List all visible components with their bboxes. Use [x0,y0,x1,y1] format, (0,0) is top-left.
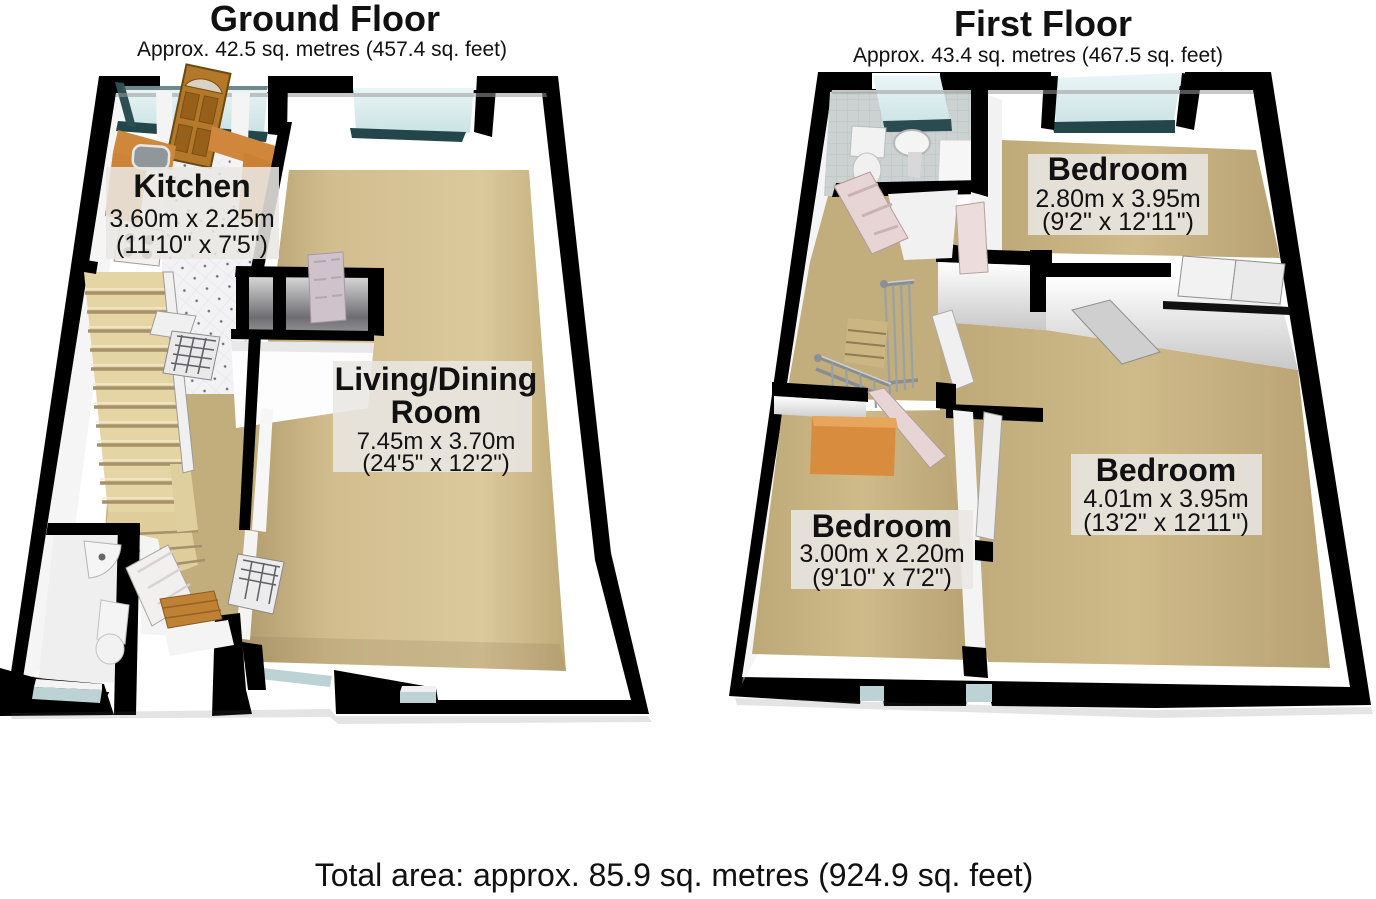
svg-text:Living/Dining: Living/Dining [335,361,538,397]
svg-text:(9'10" x 7'2"): (9'10" x 7'2") [812,564,952,592]
svg-text:3.60m x 2.25m: 3.60m x 2.25m [109,205,274,233]
svg-text:Total area: approx. 85.9 sq. m: Total area: approx. 85.9 sq. metres (924… [315,857,1034,893]
svg-text:Ground Floor: Ground Floor [210,0,440,39]
svg-text:Bedroom: Bedroom [1096,452,1236,488]
svg-text:(11'10" x 7'5"): (11'10" x 7'5") [116,231,268,259]
svg-text:Bedroom: Bedroom [812,508,952,544]
svg-text:Bedroom: Bedroom [1048,151,1188,187]
svg-text:Kitchen: Kitchen [133,168,250,204]
svg-text:Approx. 43.4 sq. metres (467.5: Approx. 43.4 sq. metres (467.5 sq. feet) [853,44,1223,67]
svg-text:Room: Room [391,394,482,430]
svg-text:(24'5" x 12'2"): (24'5" x 12'2") [362,450,510,477]
svg-text:(9'2" x 12'11"): (9'2" x 12'11") [1042,208,1194,236]
svg-text:(13'2" x 12'11"): (13'2" x 12'11") [1083,509,1249,537]
svg-text:Approx. 42.5 sq. metres (457.4: Approx. 42.5 sq. metres (457.4 sq. feet) [137,38,507,61]
svg-text:First Floor: First Floor [954,3,1132,44]
